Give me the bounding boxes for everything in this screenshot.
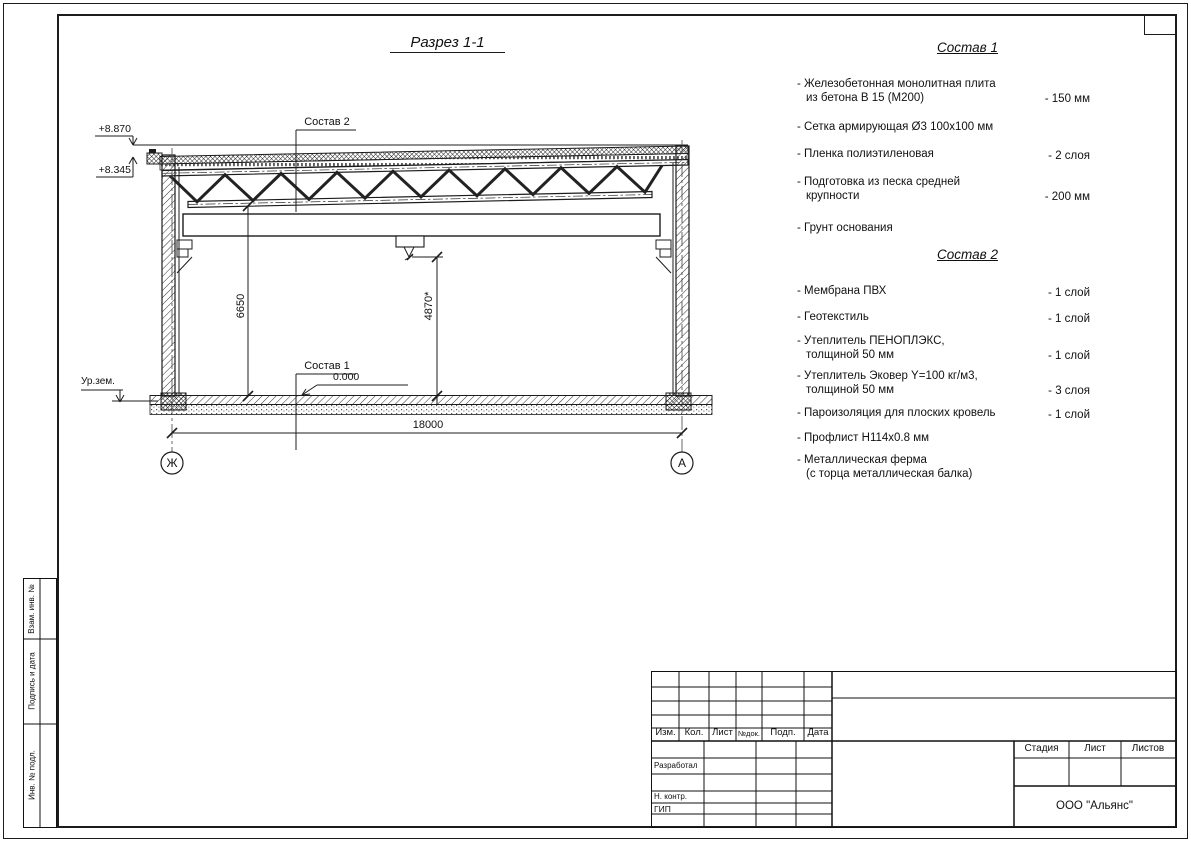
- tb-header-ndok: №док.: [736, 729, 762, 738]
- top-right-stamp-box: [1144, 14, 1177, 35]
- material-item: - Пароизоляция для плоских кровель - 1 с…: [797, 407, 1090, 421]
- dim-4870-label: 4870*: [422, 284, 436, 328]
- sostav1-list: - Железобетонная монолитная плита из бет…: [797, 78, 1090, 248]
- title-block: Изм. Кол. Лист №док. Подп. Дата Разработ…: [651, 671, 1177, 828]
- drawing-title: Разрез 1-1: [390, 34, 505, 53]
- tb-role-gip: ГИП: [654, 804, 704, 814]
- material-item: - Пленка полиэтиленовая - 2 слоя: [797, 148, 1090, 162]
- side-cell-inv: Инв. № подл.: [25, 724, 41, 827]
- elevation-mid-label: +8.345: [94, 164, 131, 176]
- material-item: - Сетка армирующая Ø3 100х100 мм: [797, 121, 1090, 135]
- sostav1-heading: Состав 1: [905, 40, 1030, 55]
- tb-header-data: Дата: [804, 727, 832, 738]
- dim-6650-label: 6650: [234, 285, 248, 327]
- elevation-zero-label: 0.000: [333, 371, 359, 383]
- material-item: - Подготовка из песка средней крупности …: [797, 176, 1090, 203]
- tb-role-ncontrol: Н. контр.: [654, 792, 704, 801]
- tb-header-kol: Кол.: [679, 727, 709, 738]
- tb-header-izm: Изм.: [652, 727, 679, 738]
- material-item: - Геотекстиль - 1 слой: [797, 311, 1090, 325]
- tb-header-sheet: Лист: [1069, 743, 1121, 754]
- tb-header-podp: Подп.: [762, 727, 804, 738]
- tb-header-stage: Стадия: [1014, 743, 1069, 754]
- axis-letter-right: А: [671, 455, 693, 471]
- material-item: - Профлист Н114х0.8 мм: [797, 432, 1090, 446]
- sostav2-heading: Состав 2: [905, 247, 1030, 262]
- side-cell-podpis: Подпись и дата: [25, 639, 41, 724]
- material-item: - Железобетонная монолитная плита из бет…: [797, 78, 1090, 105]
- sostav2-leader-label: Состав 2: [299, 116, 355, 128]
- side-cell-vzam: Взам. инв. №: [24, 579, 40, 639]
- tb-header-list: Лист: [709, 727, 736, 738]
- axis-letter-left: Ж: [161, 455, 183, 471]
- material-item: - Утеплитель ПЕНОПЛЭКС, толщиной 50 мм -…: [797, 335, 1090, 362]
- tb-role-developer: Разработал: [654, 761, 704, 770]
- side-stamp-strip: Взам. инв. № Подпись и дата Инв. № подл.: [23, 578, 57, 828]
- material-item: - Мембрана ПВХ - 1 слой: [797, 285, 1090, 299]
- ground-level-label: Ур.зем.: [81, 376, 115, 387]
- sostav2-list: - Мембрана ПВХ - 1 слой - Геотекстиль - …: [797, 285, 1090, 485]
- dim-18000-label: 18000: [402, 419, 454, 431]
- tb-company-name: ООО "Альянс": [1014, 786, 1175, 826]
- tb-header-sheets: Листов: [1121, 743, 1175, 754]
- material-item: - Металлическая ферма (с торца металличе…: [797, 454, 1090, 481]
- drawing-sheet: Разрез 1-1 Состав 2 Состав 1 +8.870 +8.3…: [0, 0, 1191, 842]
- material-item: - Грунт основания: [797, 222, 1090, 236]
- material-item: - Утеплитель Эковер Y=100 кг/м3, толщино…: [797, 370, 1090, 397]
- elevation-top-label: +8.870: [92, 123, 131, 135]
